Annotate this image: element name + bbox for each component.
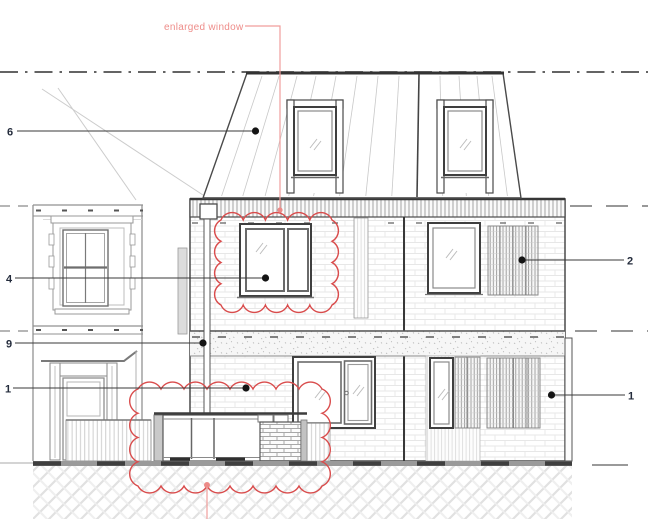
recessed-brick-strip xyxy=(354,218,368,318)
callout-1-right-label: 1 xyxy=(628,391,634,403)
callout-1-left-label: 1 xyxy=(5,384,11,396)
callout-2-label: 2 xyxy=(627,256,633,268)
callout-6: 6 xyxy=(7,127,259,139)
floor-slab-band xyxy=(190,331,565,356)
enlarged-window-label: enlarged window xyxy=(164,22,244,33)
rear-elevation-drawing: enlarged window 6 4 9 1 2 xyxy=(0,0,648,519)
callout-9-label: 9 xyxy=(6,339,12,351)
coping-stone xyxy=(274,415,288,422)
extension-brick-pier xyxy=(260,422,301,461)
dormer-window-left xyxy=(287,100,343,193)
ground-floor-narrow-window xyxy=(430,358,453,428)
first-floor-window-right xyxy=(425,223,483,295)
ground-hatch xyxy=(33,466,572,519)
rear-extension xyxy=(154,414,330,462)
enlarged-window-leader-dot xyxy=(277,207,282,212)
garden-fence-left xyxy=(66,420,151,461)
soldier-course-band xyxy=(190,199,565,217)
downpipe-right xyxy=(565,338,572,461)
patio-door xyxy=(293,357,375,428)
extension-post-left xyxy=(154,415,163,461)
enlarged-window xyxy=(237,224,314,298)
sight-lines xyxy=(42,88,206,200)
brick-screen-ground-b xyxy=(487,358,540,428)
brick-screen-ground-a xyxy=(455,357,480,428)
coping-stone xyxy=(258,415,273,422)
elevation-drawing-canvas: enlarged window 6 4 9 1 2 xyxy=(0,0,648,519)
extension-glazing xyxy=(163,415,263,461)
callout-6-label: 6 xyxy=(7,127,13,139)
callout-4-label: 4 xyxy=(6,274,13,286)
rainwater-hopper xyxy=(200,204,217,219)
garden-fence-right xyxy=(307,423,330,461)
side-return-pipe xyxy=(178,248,187,334)
dormer-window-right xyxy=(437,100,493,193)
mansard-roof xyxy=(203,73,521,198)
extension-post-right xyxy=(301,420,307,461)
neighbour-house xyxy=(33,205,151,461)
neighbour-sash-window xyxy=(49,216,135,314)
